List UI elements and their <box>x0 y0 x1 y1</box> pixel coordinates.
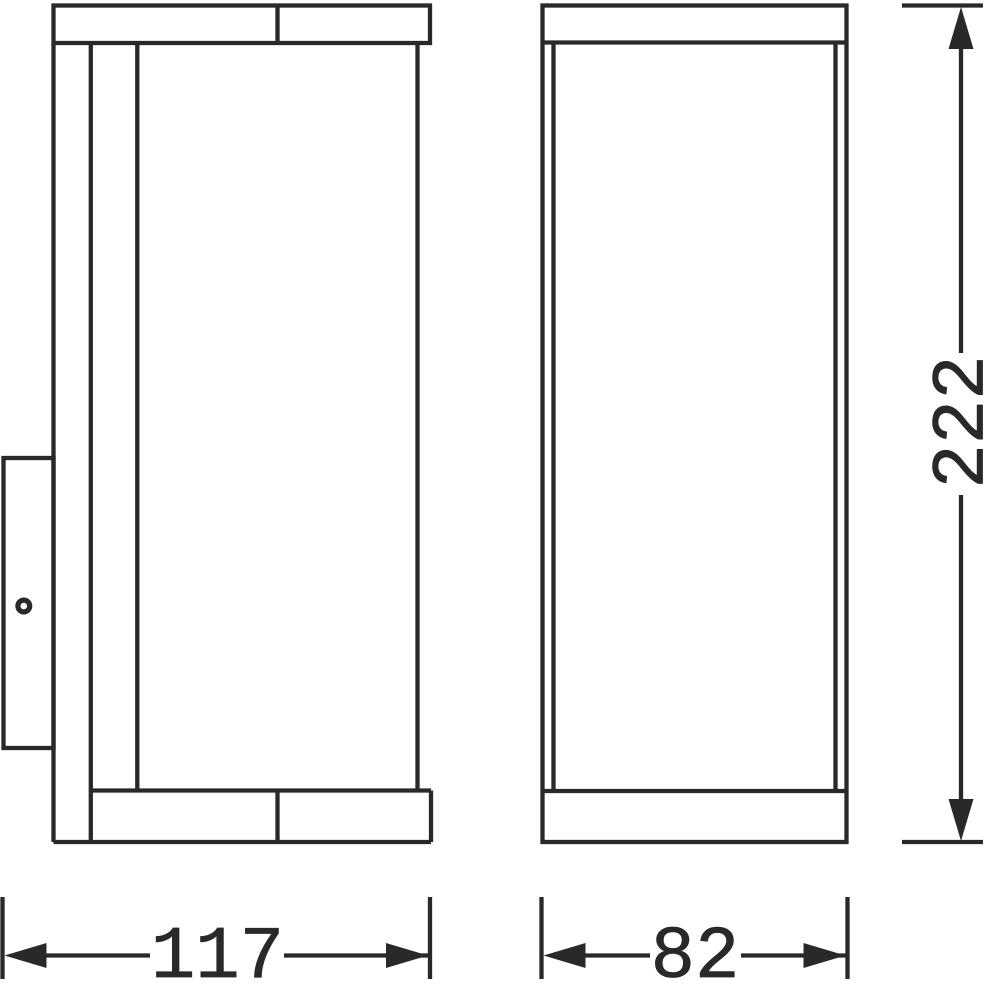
svg-text:82: 82 <box>651 916 740 1000</box>
svg-text:117: 117 <box>151 916 284 1000</box>
svg-text:222: 222 <box>922 355 1000 488</box>
